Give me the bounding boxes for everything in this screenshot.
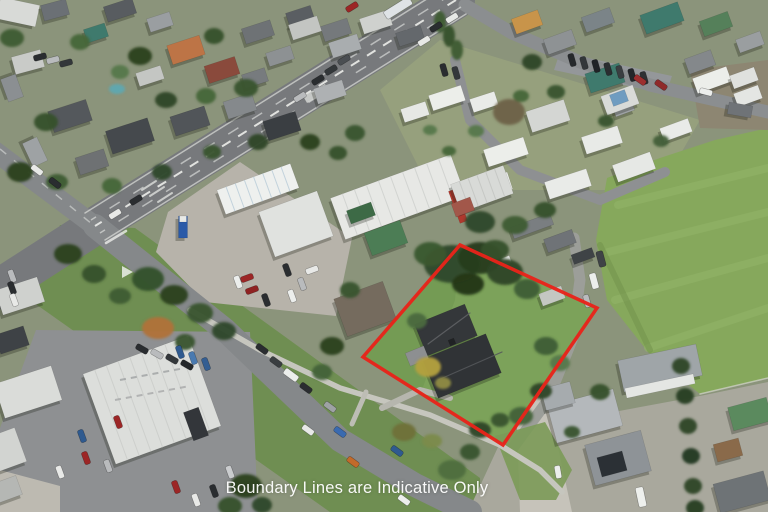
- tree: [653, 135, 669, 147]
- aerial-scene: [0, 0, 768, 512]
- tree: [392, 423, 416, 441]
- tree: [54, 244, 82, 264]
- tree: [111, 65, 129, 79]
- tree: [212, 322, 236, 340]
- tree: [460, 444, 480, 460]
- tree: [598, 115, 614, 127]
- tree: [234, 79, 258, 97]
- aerial-photo: Boundary Lines are Indicative Only: [0, 0, 768, 512]
- tree: [423, 125, 437, 135]
- tree: [340, 282, 360, 298]
- tree: [564, 426, 580, 438]
- tree: [320, 337, 344, 355]
- tree: [312, 364, 332, 380]
- tree: [204, 28, 224, 44]
- tree: [300, 134, 320, 150]
- building: [180, 216, 187, 222]
- tree: [152, 164, 172, 180]
- tree: [534, 337, 558, 355]
- tree: [160, 285, 188, 305]
- tree: [7, 162, 33, 182]
- tree: [109, 288, 131, 304]
- tree: [590, 384, 610, 400]
- tree: [0, 29, 24, 47]
- tree: [451, 40, 463, 60]
- tree: [465, 211, 495, 233]
- tree: [248, 134, 268, 150]
- tree: [187, 303, 213, 323]
- tree: [468, 125, 484, 137]
- tree: [547, 85, 565, 99]
- tree: [155, 92, 177, 108]
- tree: [493, 99, 525, 125]
- tree: [513, 90, 529, 102]
- tree: [34, 113, 58, 131]
- tree: [132, 267, 164, 291]
- tree: [203, 145, 221, 159]
- tree: [502, 216, 528, 234]
- tree: [109, 84, 125, 94]
- tree: [142, 317, 174, 339]
- tree: [128, 47, 152, 65]
- tree: [452, 273, 484, 295]
- tree: [407, 313, 427, 329]
- tree: [514, 279, 540, 299]
- tree: [522, 54, 542, 70]
- building-roof: [180, 216, 187, 222]
- tree: [442, 146, 456, 156]
- tree: [415, 357, 441, 377]
- tree: [82, 265, 106, 283]
- watermark-text: Boundary Lines are Indicative Only: [226, 479, 489, 498]
- tree: [435, 377, 451, 389]
- tree: [196, 88, 216, 104]
- tree: [682, 448, 700, 464]
- tree: [676, 388, 694, 404]
- tree: [102, 178, 122, 194]
- tree: [329, 146, 347, 160]
- tree: [438, 460, 466, 480]
- tree: [534, 202, 556, 218]
- tree: [491, 413, 509, 427]
- tree: [422, 434, 442, 448]
- tree: [679, 418, 697, 434]
- tree: [672, 358, 690, 374]
- tree: [345, 125, 365, 141]
- tree: [414, 242, 446, 266]
- tree: [684, 478, 702, 494]
- tree: [70, 34, 90, 50]
